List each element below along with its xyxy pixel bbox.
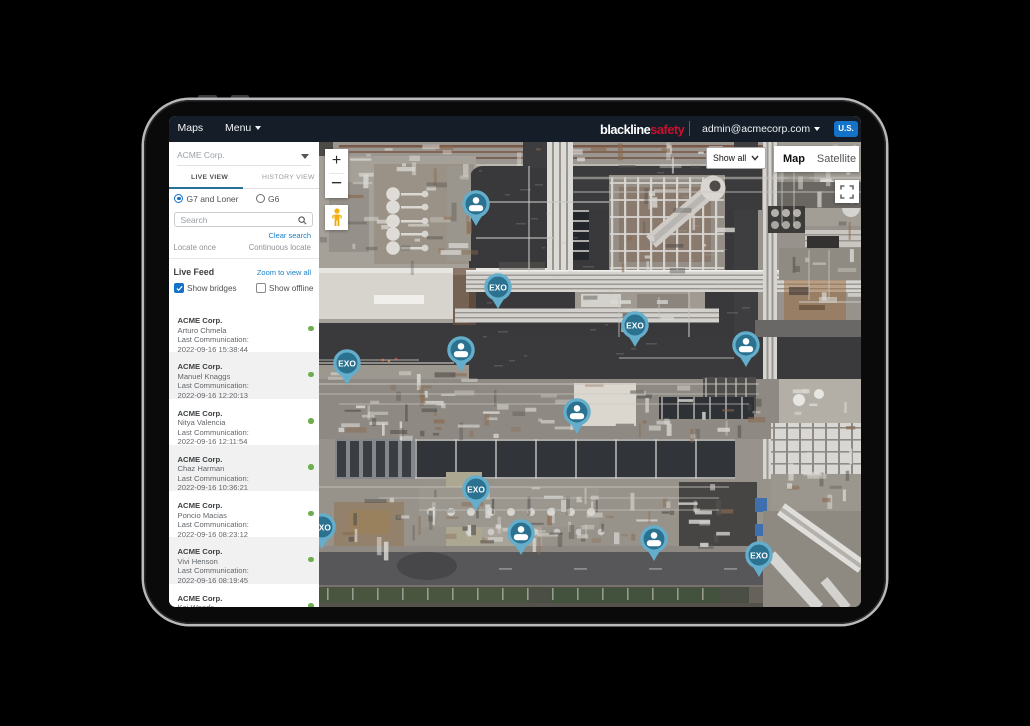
svg-text:EXO: EXO bbox=[338, 358, 356, 368]
svg-text:EXO: EXO bbox=[750, 550, 768, 560]
svg-text:EXO: EXO bbox=[489, 282, 507, 292]
svg-text:EXO: EXO bbox=[319, 522, 332, 532]
svg-text:EXO: EXO bbox=[467, 484, 485, 494]
svg-text:EXO: EXO bbox=[626, 320, 644, 330]
